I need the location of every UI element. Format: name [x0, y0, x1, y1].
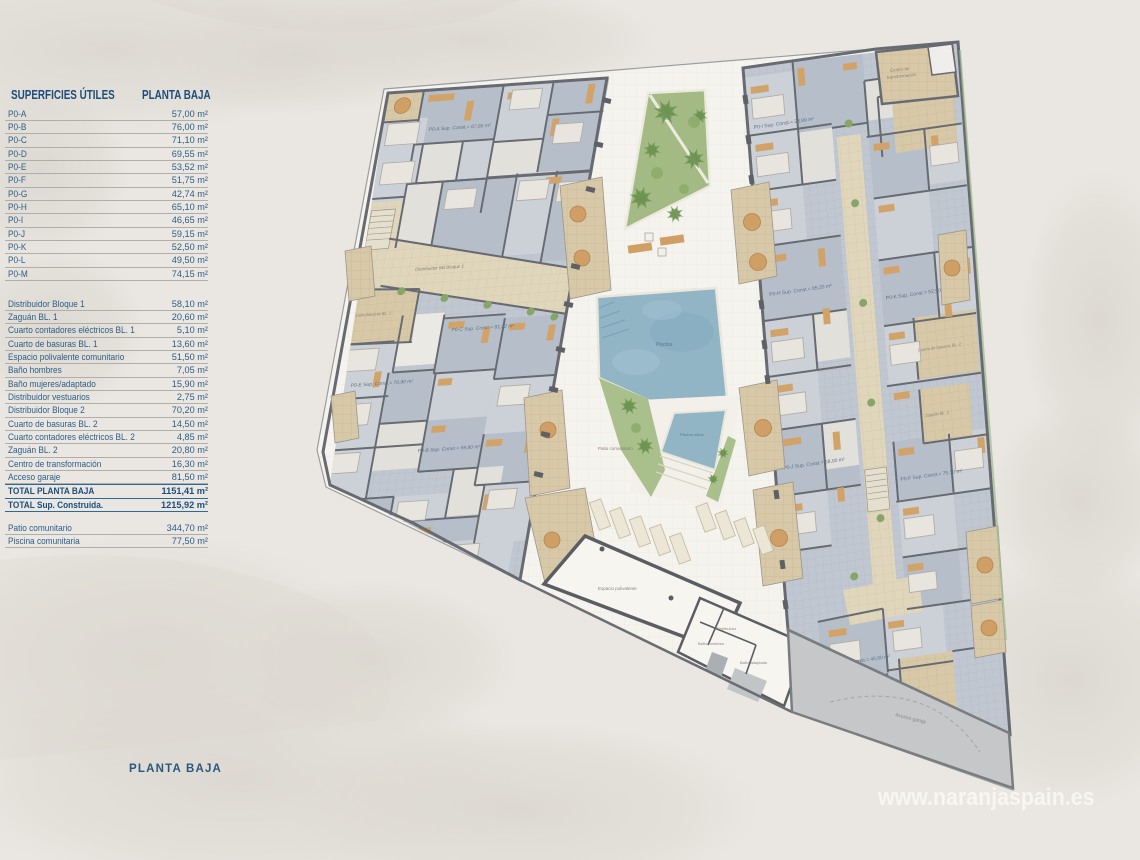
svg-text:Piscina: Piscina — [656, 342, 672, 348]
svg-text:Piscina niños: Piscina niños — [680, 432, 704, 437]
svg-text:Espacio polivalente: Espacio polivalente — [598, 586, 637, 591]
svg-text:Patio comunitario: Patio comunitario — [598, 446, 633, 451]
svg-text:Baño adaptado: Baño adaptado — [740, 660, 768, 665]
svg-text:Distribuidor: Distribuidor — [716, 626, 737, 631]
svg-text:Baño hombres: Baño hombres — [698, 641, 724, 646]
